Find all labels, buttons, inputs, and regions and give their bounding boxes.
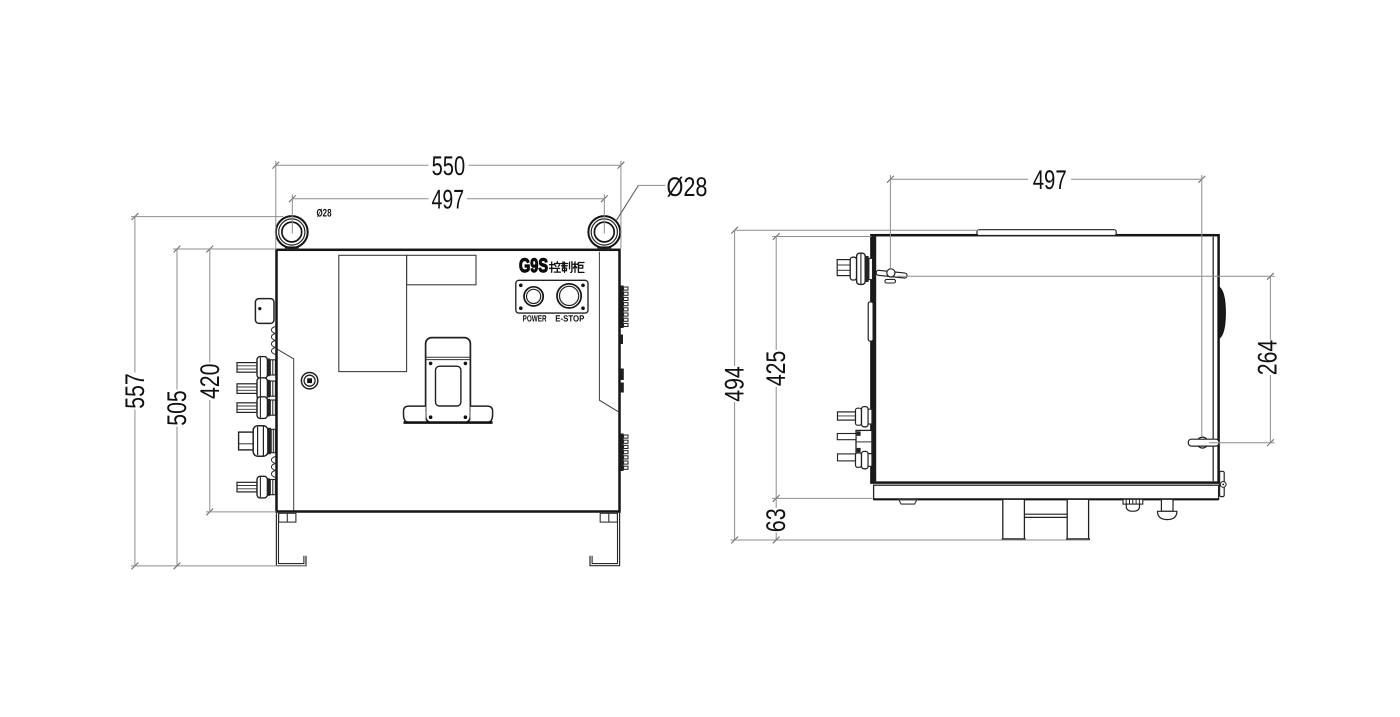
svg-text:497: 497	[432, 184, 465, 214]
svg-text:E-STOP: E-STOP	[555, 314, 584, 324]
svg-text:G9S: G9S	[519, 255, 548, 277]
svg-text:425: 425	[761, 351, 791, 387]
svg-text:497: 497	[1033, 165, 1067, 195]
svg-text:Ø28: Ø28	[667, 172, 708, 202]
svg-text:63: 63	[761, 508, 791, 532]
svg-text:505: 505	[162, 390, 192, 426]
svg-text:420: 420	[195, 364, 225, 400]
svg-text:550: 550	[432, 151, 466, 181]
svg-text:494: 494	[720, 366, 750, 402]
svg-text:264: 264	[1253, 340, 1283, 376]
svg-text:Ø28: Ø28	[317, 207, 332, 219]
svg-text:557: 557	[120, 373, 150, 409]
svg-text:POWER: POWER	[523, 314, 547, 324]
